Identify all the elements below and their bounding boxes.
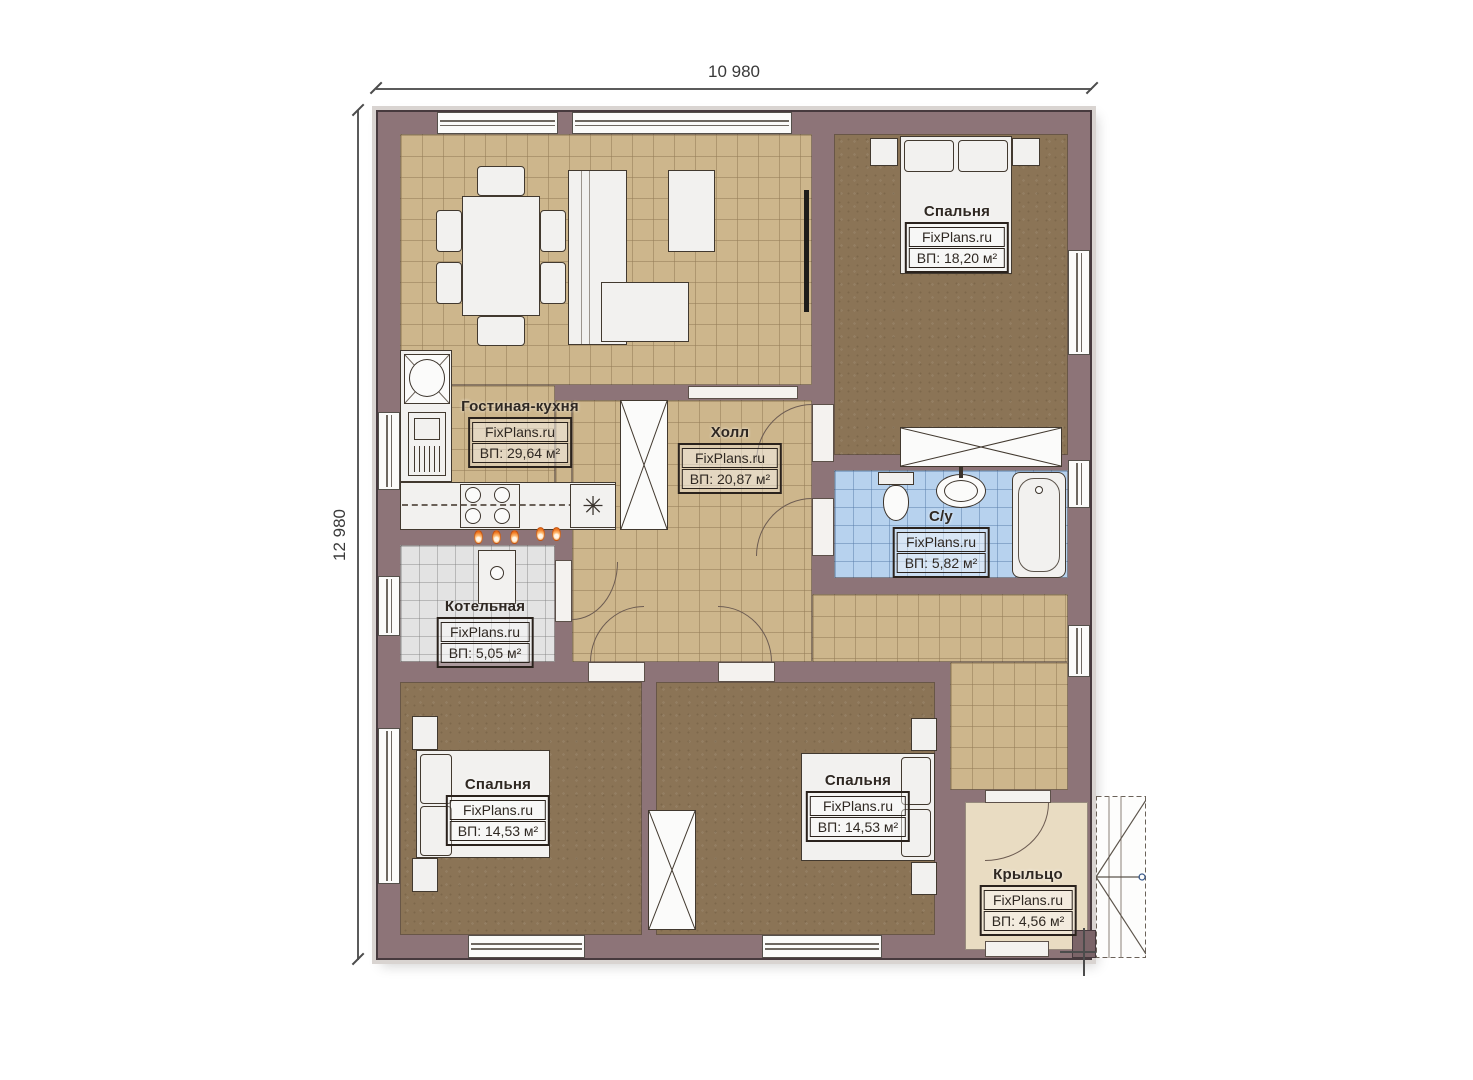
room-info-box: FixPlans.ru ВП: 5,82 м² [893,527,990,578]
flame-icon [536,527,545,541]
window [1068,250,1090,355]
room-info-box: FixPlans.ru ВП: 29,64 м² [468,417,572,468]
room-info-box: FixPlans.ru ВП: 18,20 м² [905,222,1009,273]
room-name: Холл [678,424,782,441]
faucet-icon [959,466,963,478]
dimension-line-top [376,88,1092,90]
window [437,112,558,134]
chair [540,210,566,252]
window [572,112,792,134]
room-area: ВП: 18,20 м² [909,248,1005,268]
window [1068,625,1090,677]
flame-icon [492,530,501,544]
watermark: FixPlans.ru [897,532,986,552]
sofa-chaise [601,282,689,342]
door-opening-bedroom-3 [718,662,775,682]
marker-cross [1083,928,1085,976]
watermark: FixPlans.ru [810,796,906,816]
chair [540,262,566,304]
window [378,412,400,490]
dimension-width-label: 10 980 [708,62,760,82]
room-name: Крыльцо [980,866,1077,883]
room-info-box: FixPlans.ru ВП: 20,87 м² [678,443,782,494]
stairs [1096,796,1146,958]
floor-plan: 10 980 12 980 [0,0,1473,1080]
room-info-box: FixPlans.ru ВП: 14,53 м² [806,791,910,842]
window [378,576,400,636]
dimension-line-left [357,110,359,960]
room-area: ВП: 14,53 м² [450,821,546,841]
door-opening-bedroom-2 [588,662,645,682]
room-area: ВП: 29,64 м² [472,443,568,463]
toilet-tank [878,472,914,485]
window [1068,460,1090,508]
door-opening-bedroom-1 [812,404,834,462]
room-area: ВП: 4,56 м² [984,911,1073,931]
flame-icon [552,527,561,541]
window [468,935,585,958]
room-info-box: FixPlans.ru ВП: 4,56 м² [980,885,1077,936]
tv [804,190,809,312]
room-name: Гостиная-кухня [461,398,579,415]
washbasin-bowl [944,480,978,502]
room-area: ВП: 5,05 м² [441,643,530,663]
room-label-bathroom: С/у FixPlans.ru ВП: 5,82 м² [893,508,990,578]
wardrobe [620,400,668,530]
wardrobe [648,810,696,930]
kitchen-sink-icon [409,359,445,397]
fridge-detail [414,418,440,440]
watermark: FixPlans.ru [441,622,530,642]
dimension-height-label: 12 980 [330,509,350,561]
porch-threshold [985,941,1049,957]
flame-icon [510,530,519,544]
nightstand [911,718,937,751]
room-label-bedroom-1: Спальня FixPlans.ru ВП: 18,20 м² [905,203,1009,273]
room-info-box: FixPlans.ru ВП: 5,05 м² [437,617,534,668]
chair [436,210,462,252]
watermark: FixPlans.ru [472,422,568,442]
chair [477,316,525,346]
chair [436,262,462,304]
burner-icon [465,508,481,524]
dining-table [462,196,540,316]
watermark: FixPlans.ru [450,800,546,820]
nightstand [911,862,937,895]
nightstand [870,138,898,166]
wall-opening [688,386,798,399]
room-area: ВП: 20,87 м² [682,469,778,489]
door-opening-boiler [555,560,572,622]
nightstand [412,716,438,750]
room-label-living: Гостиная-кухня FixPlans.ru ВП: 29,64 м² [461,398,579,468]
nightstand [1012,138,1040,166]
floor-entry-corridor [950,662,1068,790]
flame-icon [474,530,483,544]
fridge-vent-icon [414,446,440,472]
room-name: Спальня [806,772,910,789]
door-opening-bathroom [812,498,834,556]
boiler-dial-icon [490,566,504,580]
coffee-table [668,170,715,252]
nightstand [412,858,438,892]
window [378,728,400,884]
room-label-porch: Крыльцо FixPlans.ru ВП: 4,56 м² [980,866,1077,936]
entrance-door-opening [985,790,1051,803]
window [762,935,882,958]
wardrobe [900,427,1062,467]
room-label-hall: Холл FixPlans.ru ВП: 20,87 м² [678,424,782,494]
drain-icon [1035,486,1043,494]
chair [477,166,525,196]
watermark: FixPlans.ru [984,890,1073,910]
watermark: FixPlans.ru [909,227,1005,247]
room-label-boiler: Котельная FixPlans.ru ВП: 5,05 м² [437,598,534,668]
room-label-bedroom-3: Спальня FixPlans.ru ВП: 14,53 м² [806,772,910,842]
room-area: ВП: 14,53 м² [810,817,906,837]
floor-hall-corridor [812,594,1068,662]
dishwasher-icon: ✳ [570,484,616,528]
room-name: Спальня [905,203,1009,220]
room-label-bedroom-2: Спальня FixPlans.ru ВП: 14,53 м² [446,776,550,846]
pillow [958,140,1008,172]
burner-icon [465,487,481,503]
burner-icon [494,487,510,503]
pillow [904,140,954,172]
room-name: Котельная [437,598,534,615]
room-info-box: FixPlans.ru ВП: 14,53 м² [446,795,550,846]
watermark: FixPlans.ru [682,448,778,468]
room-name: С/у [893,508,990,525]
room-area: ВП: 5,82 м² [897,553,986,573]
room-name: Спальня [446,776,550,793]
burner-icon [494,508,510,524]
